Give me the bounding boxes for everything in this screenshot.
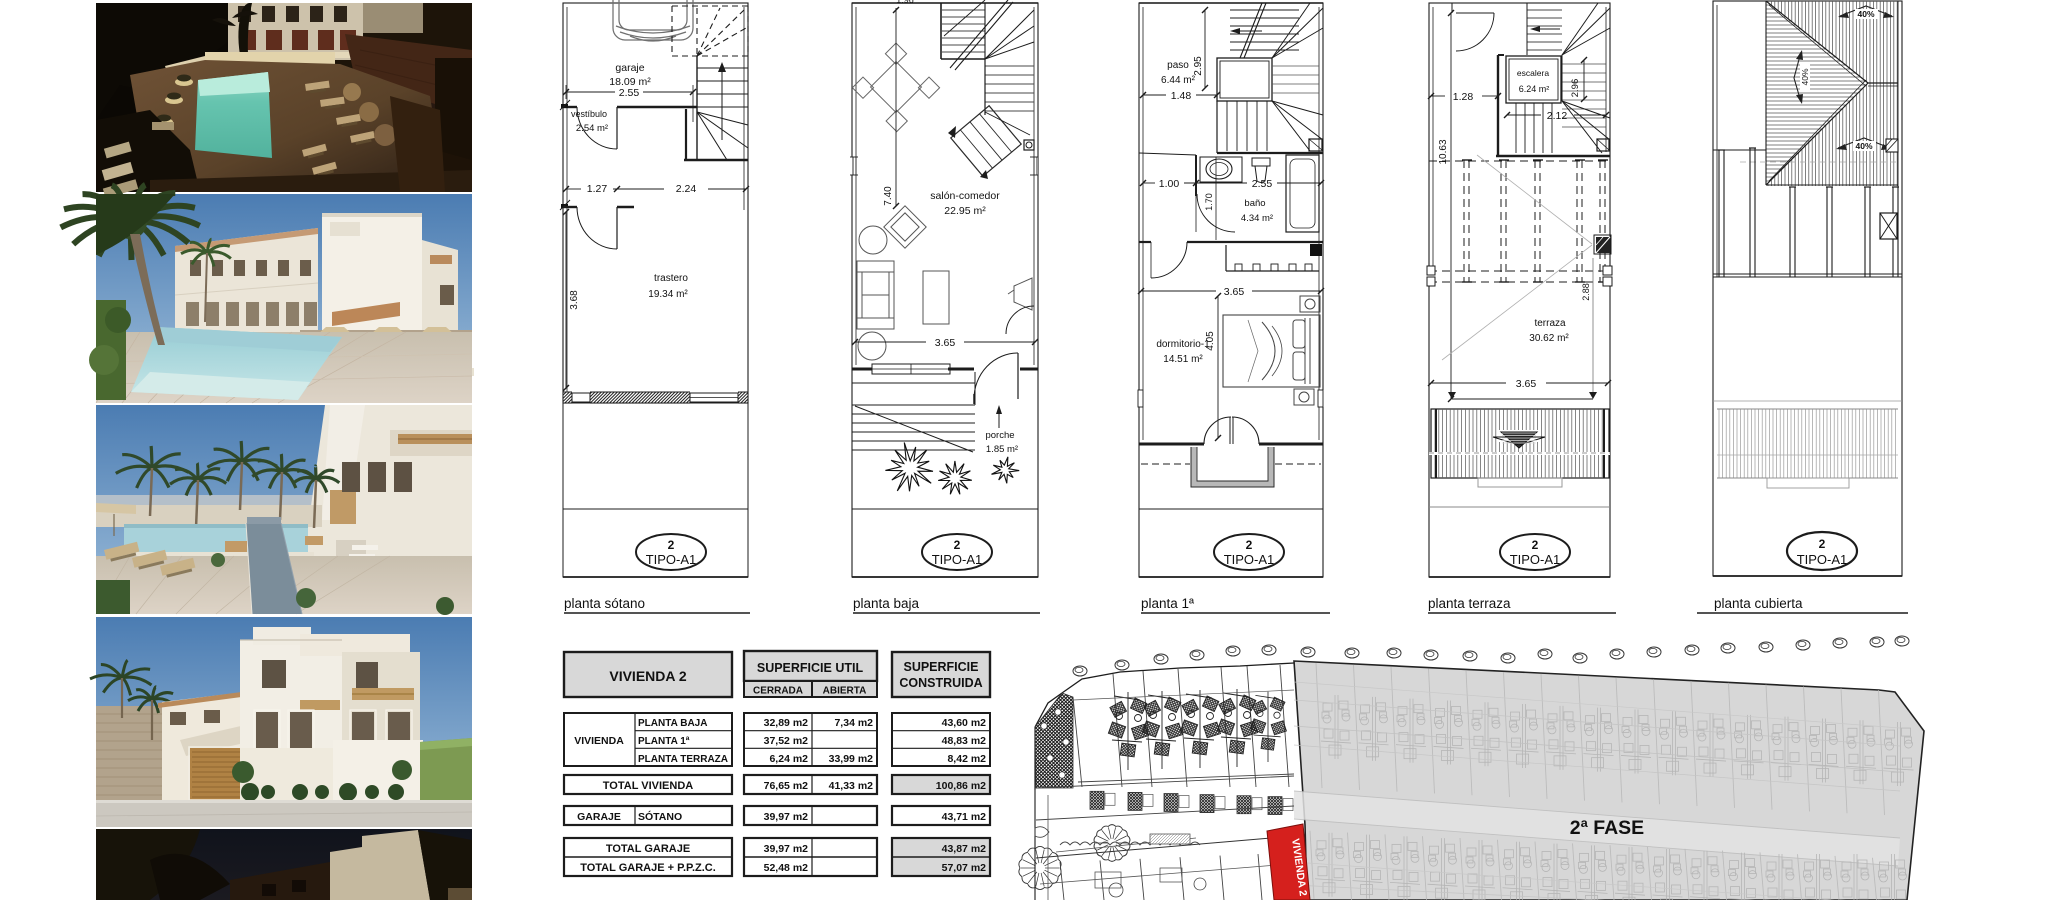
svg-text:2: 2 (1532, 538, 1539, 552)
svg-text:TOTAL GARAJE + P.P.Z.C.: TOTAL GARAJE + P.P.Z.C. (580, 862, 716, 874)
svg-text:TIPO-A1: TIPO-A1 (1510, 552, 1561, 567)
svg-text:14.51 m²: 14.51 m² (1163, 354, 1203, 365)
svg-text:1.70: 1.70 (1204, 193, 1214, 211)
svg-text:40%: 40% (1857, 9, 1874, 19)
svg-text:VIVIENDA: VIVIENDA (574, 735, 624, 747)
svg-text:33,99 m2: 33,99 m2 (829, 753, 874, 765)
svg-text:dormitorio-1: dormitorio-1 (1156, 339, 1210, 350)
svg-text:43,71 m2: 43,71 m2 (942, 811, 987, 823)
svg-text:19.34 m²: 19.34 m² (648, 289, 688, 300)
svg-text:1.27: 1.27 (587, 183, 608, 195)
svg-text:terraza: terraza (1534, 318, 1566, 329)
svg-text:planta sótano: planta sótano (564, 596, 645, 611)
svg-text:41,33 m2: 41,33 m2 (829, 780, 874, 792)
svg-text:1.96: 1.96 (896, 0, 914, 5)
svg-text:SUPERFICIE UTIL: SUPERFICIE UTIL (757, 661, 864, 675)
svg-text:22.95 m²: 22.95 m² (944, 205, 986, 217)
svg-text:TOTAL VIVIENDA: TOTAL VIVIENDA (603, 780, 694, 792)
svg-text:CONSTRUIDA: CONSTRUIDA (899, 676, 982, 690)
svg-text:2.88: 2.88 (1581, 283, 1591, 301)
svg-text:3.65: 3.65 (935, 337, 956, 349)
svg-text:32,89 m2: 32,89 m2 (764, 717, 809, 729)
svg-text:ABIERTA: ABIERTA (823, 686, 867, 697)
svg-text:PLANTA TERRAZA: PLANTA TERRAZA (638, 754, 728, 765)
svg-text:1.00: 1.00 (1159, 178, 1180, 190)
svg-text:2.54 m²: 2.54 m² (576, 123, 608, 134)
svg-text:76,65 m2: 76,65 m2 (764, 780, 809, 792)
svg-text:2.12: 2.12 (1547, 110, 1568, 122)
svg-text:39,97 m2: 39,97 m2 (764, 843, 809, 855)
svg-text:VIVIENDA 2: VIVIENDA 2 (609, 668, 686, 684)
svg-text:TOTAL GARAJE: TOTAL GARAJE (606, 843, 690, 855)
svg-text:6,24 m2: 6,24 m2 (769, 753, 808, 765)
svg-text:40%: 40% (1855, 141, 1872, 151)
svg-text:TIPO-A1: TIPO-A1 (1224, 552, 1275, 567)
svg-text:2.24: 2.24 (676, 183, 697, 195)
svg-text:2: 2 (1246, 538, 1253, 552)
svg-text:2ª FASE: 2ª FASE (1570, 817, 1644, 839)
svg-text:planta baja: planta baja (853, 596, 920, 611)
svg-text:porche: porche (985, 430, 1014, 441)
svg-text:PLANTA BAJA: PLANTA BAJA (638, 718, 707, 729)
svg-text:30.62 m²: 30.62 m² (1529, 333, 1569, 344)
svg-text:vestíbulo: vestíbulo (571, 109, 607, 119)
svg-text:57,07 m2: 57,07 m2 (942, 862, 987, 874)
svg-text:PLANTA 1ª: PLANTA 1ª (638, 736, 690, 747)
svg-text:escalera: escalera (1517, 68, 1549, 78)
svg-text:GARAJE: GARAJE (577, 811, 621, 823)
svg-text:2.95: 2.95 (1193, 56, 1204, 76)
svg-text:52,48 m2: 52,48 m2 (764, 862, 809, 874)
svg-text:2: 2 (668, 538, 675, 552)
svg-text:SUPERFICIE: SUPERFICIE (903, 660, 978, 674)
svg-text:4.05: 4.05 (1205, 331, 1216, 351)
svg-text:4.34 m²: 4.34 m² (1241, 213, 1273, 224)
svg-text:48,83 m2: 48,83 m2 (942, 735, 987, 747)
svg-text:1.48: 1.48 (1171, 90, 1192, 102)
svg-text:43,60 m2: 43,60 m2 (942, 717, 987, 729)
svg-text:40%: 40% (1800, 68, 1810, 85)
svg-text:3.68: 3.68 (569, 290, 580, 310)
svg-text:planta terraza: planta terraza (1428, 596, 1511, 611)
svg-text:8,42 m2: 8,42 m2 (947, 753, 986, 765)
svg-text:paso: paso (1167, 60, 1189, 71)
svg-text:2: 2 (1819, 537, 1826, 551)
svg-text:planta cubierta: planta cubierta (1714, 596, 1803, 611)
svg-text:6.24 m²: 6.24 m² (1519, 84, 1550, 94)
svg-text:2: 2 (954, 538, 961, 552)
svg-text:TIPO-A1: TIPO-A1 (932, 552, 983, 567)
svg-text:SÓTANO: SÓTANO (638, 810, 682, 823)
svg-text:TIPO-A1: TIPO-A1 (646, 552, 697, 567)
svg-text:1.85 m²: 1.85 m² (986, 444, 1018, 455)
svg-text:7,34 m2: 7,34 m2 (834, 717, 873, 729)
svg-text:3.65: 3.65 (1224, 286, 1245, 298)
svg-text:trastero: trastero (654, 273, 688, 284)
svg-text:3.65: 3.65 (1516, 378, 1537, 390)
svg-text:TIPO-A1: TIPO-A1 (1797, 552, 1848, 567)
svg-text:2.55: 2.55 (619, 87, 640, 99)
svg-text:2.96: 2.96 (1570, 79, 1581, 98)
svg-text:43,87 m2: 43,87 m2 (942, 843, 987, 855)
svg-text:salón-comedor: salón-comedor (930, 190, 1000, 202)
svg-text:39,97 m2: 39,97 m2 (764, 811, 809, 823)
svg-text:baño: baño (1244, 198, 1265, 209)
svg-text:100,86 m2: 100,86 m2 (936, 780, 986, 792)
svg-text:CERRADA: CERRADA (753, 686, 803, 697)
svg-text:2.55: 2.55 (1252, 178, 1273, 190)
svg-text:37,52 m2: 37,52 m2 (764, 735, 809, 747)
svg-text:garaje: garaje (615, 62, 644, 74)
svg-text:planta 1ª: planta 1ª (1141, 596, 1195, 611)
svg-text:1.28: 1.28 (1453, 91, 1474, 103)
svg-text:6.44 m²: 6.44 m² (1161, 75, 1196, 86)
svg-text:7.40: 7.40 (883, 186, 894, 206)
